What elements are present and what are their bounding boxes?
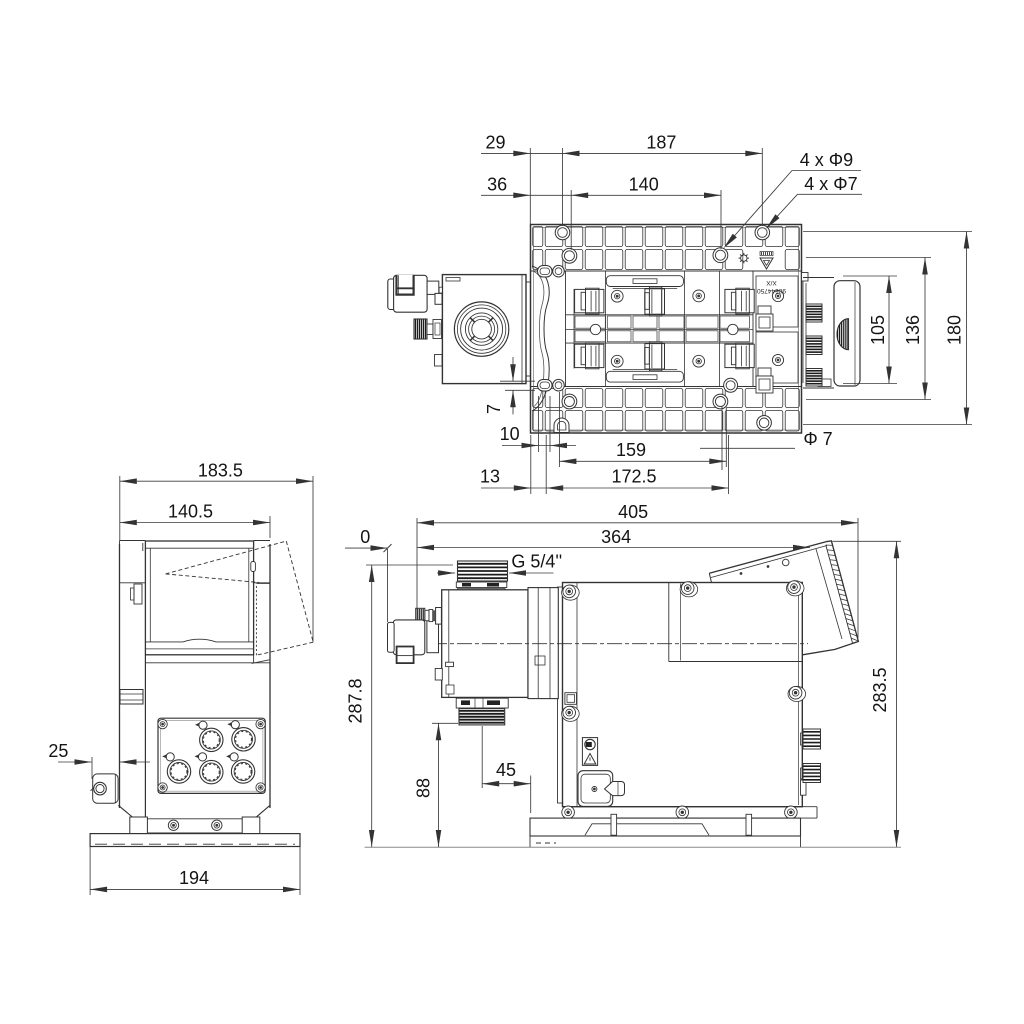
svg-text:45: 45 xyxy=(496,760,516,780)
svg-text:187: 187 xyxy=(646,133,676,153)
svg-text:159: 159 xyxy=(616,440,646,460)
svg-text:4 x Φ7: 4 x Φ7 xyxy=(804,174,857,194)
svg-text:Φ 7: Φ 7 xyxy=(803,429,832,449)
svg-text:136: 136 xyxy=(903,315,923,345)
svg-text:25: 25 xyxy=(48,741,68,761)
svg-text:X/X: X/X xyxy=(766,279,777,286)
svg-text:29: 29 xyxy=(485,133,505,153)
svg-text:0: 0 xyxy=(360,527,370,547)
svg-text:105: 105 xyxy=(868,315,888,345)
svg-text:4 x Φ9: 4 x Φ9 xyxy=(800,150,853,170)
svg-text:287.8: 287.8 xyxy=(346,678,366,723)
svg-text:98644750: 98644750 xyxy=(757,287,786,294)
svg-text:13: 13 xyxy=(480,467,500,487)
svg-text:G 5/4'': G 5/4'' xyxy=(511,552,562,572)
svg-text:36: 36 xyxy=(487,175,507,195)
svg-text:140: 140 xyxy=(629,175,659,195)
svg-text:283.5: 283.5 xyxy=(870,667,890,712)
svg-text:405: 405 xyxy=(618,502,648,522)
svg-text:140.5: 140.5 xyxy=(168,502,213,522)
svg-text:7: 7 xyxy=(484,404,504,414)
svg-text:183.5: 183.5 xyxy=(198,461,243,481)
svg-text:180: 180 xyxy=(945,315,965,345)
svg-text:194: 194 xyxy=(179,868,209,888)
svg-text:364: 364 xyxy=(601,527,631,547)
svg-text:10: 10 xyxy=(500,424,520,444)
svg-text:172.5: 172.5 xyxy=(611,467,656,487)
svg-text:88: 88 xyxy=(414,778,434,798)
